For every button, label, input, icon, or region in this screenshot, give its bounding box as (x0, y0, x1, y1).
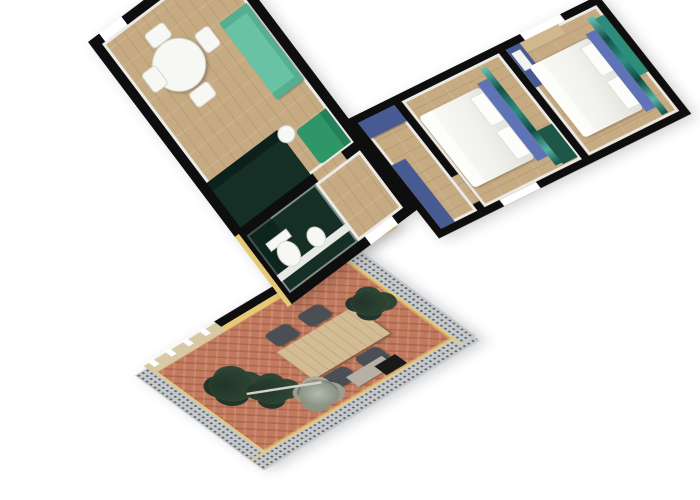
floorplan-canvas (0, 0, 700, 500)
